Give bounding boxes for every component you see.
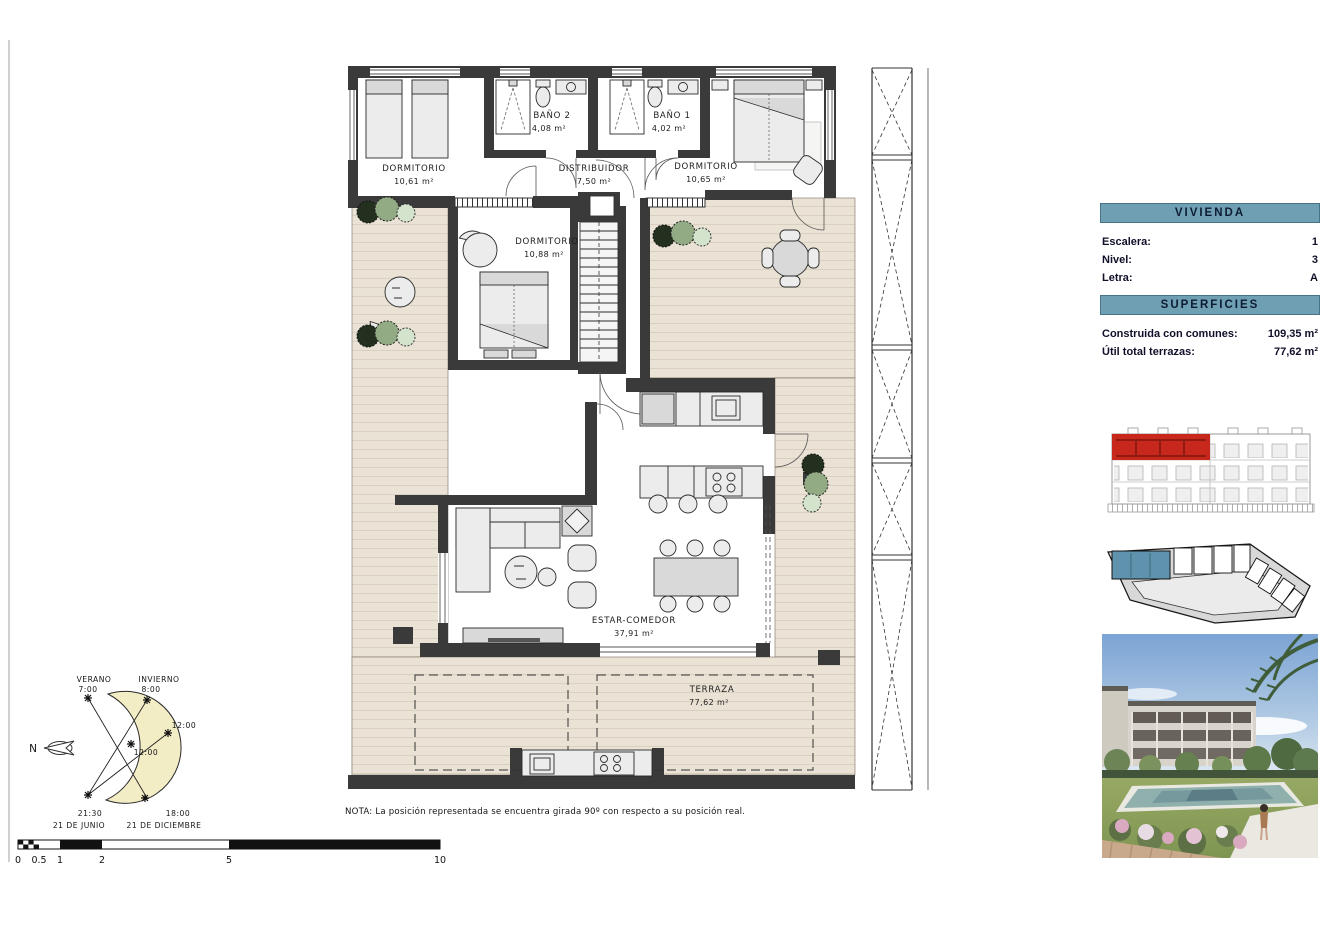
field-escalera: Escalera: 1	[1100, 233, 1320, 251]
room-area-estar-comedor: 37,91 m²	[614, 629, 654, 638]
bedroom-1-furniture	[366, 80, 448, 158]
sun-label-summer-evening: 21:30	[78, 809, 102, 818]
kitchen-furniture	[640, 392, 763, 513]
sun-label-summer-date: 21 DE JUNIO	[53, 821, 105, 830]
vivienda-header: VIVIENDA	[1100, 203, 1320, 223]
room-area-distribuidor: 7,50 m²	[577, 177, 611, 186]
area-util-value: 77,62 m²	[1274, 346, 1318, 358]
field-nivel-label: Nivel:	[1102, 254, 1132, 266]
scale-tick-2: 2	[99, 855, 105, 866]
sun-diagram: VERANO 7:00 INVIERNO 8:00 12:00 12:00 21…	[29, 675, 201, 830]
building-photo	[1102, 634, 1318, 858]
highlighted-unit-blue	[1112, 551, 1170, 579]
room-area-dormitorio-2: 10,65 m²	[686, 175, 726, 184]
highlighted-unit-red	[1112, 434, 1210, 460]
scale-tick-5: 5	[226, 855, 232, 866]
sun-label-noon-outer: 12:00	[172, 721, 196, 730]
sun-label-invierno: INVIERNO	[138, 675, 179, 684]
sun-label-verano-time: 7:00	[78, 685, 97, 694]
sun-label-noon-inner: 12:00	[134, 748, 158, 757]
lattice-strip	[872, 68, 928, 790]
room-area-bano-2: 4,08 m²	[532, 124, 566, 133]
room-label-terraza: TERRAZA	[689, 685, 735, 695]
plan-sheet: DORMITORIO 10,61 m² BAÑO 2 4,08 m² DISTR…	[0, 0, 1323, 936]
room-label-dormitorio-1: DORMITORIO	[382, 164, 446, 174]
siteplan-thumbnail	[1100, 522, 1322, 627]
north-label: N	[29, 743, 37, 755]
room-area-terraza: 77,62 m²	[689, 698, 729, 707]
field-escalera-value: 1	[1312, 236, 1318, 248]
area-construida-value: 109,35 m²	[1268, 328, 1318, 340]
field-letra-value: A	[1310, 272, 1318, 284]
superficies-header: SUPERFICIES	[1100, 295, 1320, 315]
north-arrow-icon: N	[29, 741, 74, 755]
field-escalera-label: Escalera:	[1102, 236, 1151, 248]
room-label-bano-2: BAÑO 2	[533, 110, 570, 121]
area-util-label: Útil total terrazas:	[1102, 346, 1195, 358]
area-construida-label: Construida con comunes:	[1102, 328, 1238, 340]
scale-tick-05: 0.5	[31, 855, 46, 866]
room-area-bano-1: 4,02 m²	[652, 124, 686, 133]
room-label-bano-1: BAÑO 1	[653, 110, 690, 121]
room-label-dormitorio-2: DORMITORIO	[674, 162, 738, 172]
field-nivel-value: 3	[1312, 254, 1318, 266]
orientation-note: NOTA: La posición representada se encuen…	[345, 806, 745, 817]
room-area-dormitorio-3: 10,88 m²	[524, 250, 564, 259]
info-panel: VIVIENDA Escalera: 1 Nivel: 3 Letra: A S…	[1100, 203, 1320, 361]
sun-label-verano: VERANO	[77, 675, 112, 684]
area-util: Útil total terrazas: 77,62 m²	[1100, 343, 1320, 361]
field-letra-label: Letra:	[1102, 272, 1133, 284]
sun-label-invierno-time: 8:00	[141, 685, 160, 694]
area-construida: Construida con comunes: 109,35 m²	[1100, 325, 1320, 343]
room-label-estar-comedor: ESTAR-COMEDOR	[592, 616, 676, 626]
room-area-dormitorio-1: 10,61 m²	[394, 177, 434, 186]
scale-bar: 0 0.5 1 2 5 10	[15, 840, 446, 866]
sun-label-winter-date: 21 DE DICIEMBRE	[127, 821, 202, 830]
room-label-distribuidor: DISTRIBUIDOR	[559, 164, 630, 174]
scale-tick-10: 10	[434, 855, 446, 866]
scale-tick-0: 0	[15, 855, 21, 866]
room-label-dormitorio-3: DORMITORIO	[515, 237, 579, 247]
field-letra: Letra: A	[1100, 269, 1320, 287]
scale-tick-1: 1	[57, 855, 63, 866]
elevation-thumbnail	[1100, 418, 1322, 518]
sun-label-winter-evening: 18:00	[166, 809, 190, 818]
field-nivel: Nivel: 3	[1100, 251, 1320, 269]
